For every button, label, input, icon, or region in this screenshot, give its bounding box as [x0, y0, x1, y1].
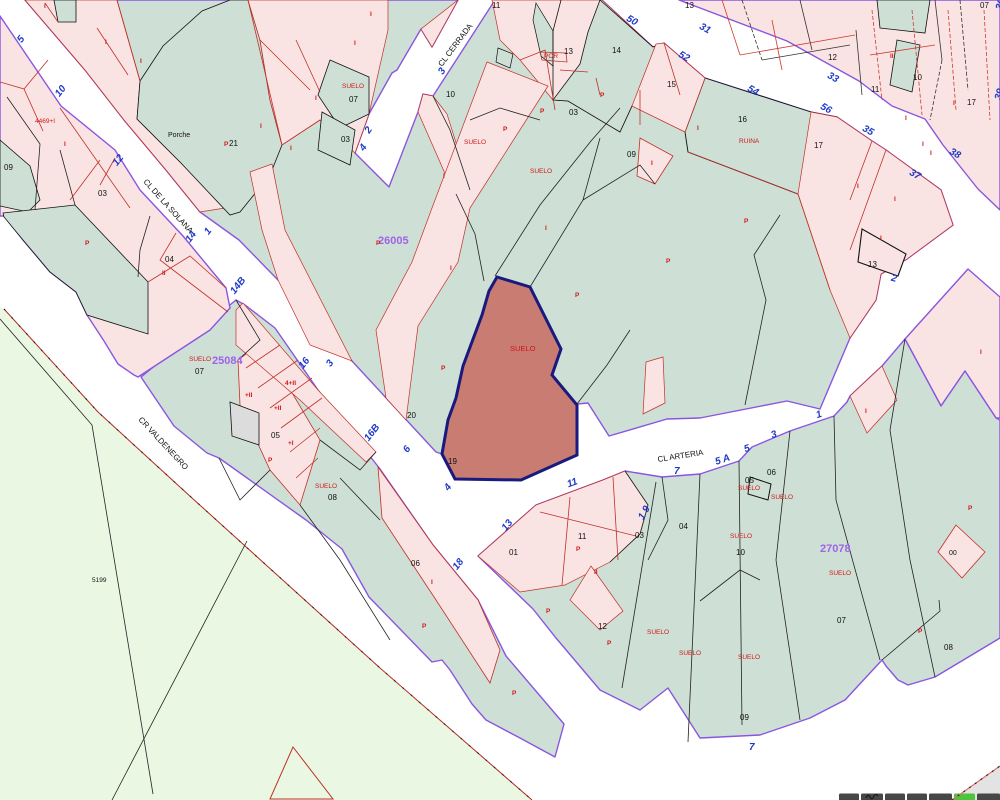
svg-text:09: 09: [627, 150, 636, 159]
svg-text:10: 10: [913, 73, 922, 82]
svg-text:I: I: [370, 11, 372, 18]
svg-text:07: 07: [837, 616, 846, 625]
svg-text:08: 08: [944, 643, 953, 652]
svg-text:SUELO: SUELO: [730, 533, 752, 540]
svg-text:17: 17: [967, 98, 976, 107]
svg-text:7: 7: [749, 742, 755, 753]
svg-text:II: II: [594, 569, 598, 576]
svg-text:01: 01: [509, 548, 518, 557]
svg-text:20: 20: [407, 411, 416, 420]
svg-text:I: I: [64, 141, 66, 148]
svg-text:P: P: [540, 108, 545, 115]
svg-text:I: I: [140, 58, 142, 65]
svg-text:II: II: [162, 270, 166, 277]
svg-text:P: P: [575, 292, 580, 299]
svg-text:11: 11: [492, 1, 501, 10]
svg-text:II: II: [890, 53, 894, 60]
svg-text:RUINA: RUINA: [739, 138, 760, 145]
svg-text:P: P: [607, 640, 612, 647]
svg-text:P: P: [512, 690, 517, 697]
svg-text:I: I: [260, 123, 262, 130]
svg-text:08: 08: [328, 493, 337, 502]
svg-text:P: P: [600, 92, 605, 99]
svg-text:05: 05: [745, 476, 754, 485]
svg-text:25084: 25084: [212, 355, 243, 367]
svg-text:SUELO: SUELO: [679, 650, 701, 657]
svg-text:I: I: [905, 115, 907, 122]
svg-text:26005: 26005: [378, 235, 409, 247]
svg-text:07: 07: [195, 367, 204, 376]
svg-text:4469+I: 4469+I: [35, 118, 55, 125]
svg-text:POR: POR: [544, 53, 558, 60]
svg-text:SUELO: SUELO: [647, 629, 669, 636]
svg-text:16: 16: [738, 115, 747, 124]
svg-text:03: 03: [341, 135, 350, 144]
svg-text:+II: +II: [274, 405, 282, 412]
svg-text:SUELO: SUELO: [738, 654, 760, 661]
svg-text:05: 05: [271, 431, 280, 440]
svg-text:04: 04: [165, 255, 174, 264]
svg-text:SUELO: SUELO: [771, 494, 793, 501]
svg-text:Porche: Porche: [168, 132, 190, 139]
svg-text:+II: +II: [245, 392, 253, 399]
svg-text:SUELO: SUELO: [829, 570, 851, 577]
svg-text:04: 04: [679, 522, 688, 531]
svg-text:I: I: [443, 173, 445, 180]
svg-text:SUELO: SUELO: [189, 356, 211, 363]
svg-text:I: I: [315, 95, 317, 102]
svg-text:P: P: [503, 126, 508, 133]
svg-text:P: P: [224, 141, 229, 148]
svg-text:P: P: [744, 218, 749, 225]
svg-text:06: 06: [767, 468, 776, 477]
svg-text:I: I: [930, 150, 932, 157]
svg-text:SUELO: SUELO: [342, 83, 364, 90]
svg-text:SUELO: SUELO: [530, 168, 552, 175]
svg-text:21: 21: [229, 139, 238, 148]
svg-text:I: I: [880, 235, 882, 242]
svg-text:I: I: [651, 160, 653, 167]
svg-text:I: I: [290, 145, 292, 152]
svg-text:P: P: [576, 546, 581, 553]
svg-text:17: 17: [814, 141, 823, 150]
svg-text:I: I: [857, 183, 859, 190]
svg-text:19: 19: [448, 457, 457, 466]
svg-text:12: 12: [828, 53, 837, 62]
svg-text:5199: 5199: [92, 577, 107, 584]
svg-text:I: I: [431, 579, 433, 586]
svg-text:+I: +I: [288, 440, 294, 447]
svg-text:P: P: [376, 240, 381, 247]
svg-text:I: I: [450, 265, 452, 272]
svg-text:09: 09: [740, 713, 749, 722]
svg-text:P: P: [85, 240, 90, 247]
svg-text:13: 13: [868, 260, 877, 269]
svg-text:07: 07: [980, 1, 989, 10]
svg-text:14: 14: [612, 46, 621, 55]
svg-text:I: I: [953, 100, 955, 107]
svg-text:27078: 27078: [820, 543, 851, 555]
svg-text:30: 30: [994, 0, 1000, 11]
svg-text:10: 10: [736, 548, 745, 557]
svg-text:15: 15: [667, 80, 676, 89]
svg-text:I: I: [894, 196, 896, 203]
svg-text:11: 11: [578, 532, 587, 541]
svg-text:13: 13: [564, 47, 573, 56]
svg-text:I: I: [105, 39, 107, 46]
svg-text:I: I: [697, 125, 699, 132]
svg-text:I: I: [354, 40, 356, 47]
svg-text:SUELO: SUELO: [464, 139, 486, 146]
svg-text:4+II: 4+II: [285, 380, 296, 387]
svg-text:11: 11: [871, 85, 880, 94]
svg-text:SUELO: SUELO: [738, 485, 760, 492]
svg-text:7: 7: [674, 466, 680, 477]
svg-text:I: I: [545, 225, 547, 232]
svg-text:10: 10: [446, 90, 455, 99]
svg-text:P: P: [968, 505, 973, 512]
svg-text:P: P: [441, 365, 446, 372]
svg-text:I: I: [865, 408, 867, 415]
svg-text:07: 07: [349, 95, 358, 104]
svg-text:06: 06: [411, 559, 420, 568]
svg-text:09: 09: [4, 163, 13, 172]
svg-text:P: P: [268, 457, 273, 464]
svg-text:13: 13: [685, 1, 694, 10]
svg-text:P: P: [666, 258, 671, 265]
svg-text:P: P: [918, 628, 923, 635]
svg-text:03: 03: [635, 531, 644, 540]
svg-text:03: 03: [569, 108, 578, 117]
svg-text:00: 00: [949, 550, 957, 557]
svg-text:P: P: [422, 623, 427, 630]
svg-text:SUELO: SUELO: [510, 344, 536, 353]
svg-text:12: 12: [598, 622, 607, 631]
svg-text:I: I: [980, 349, 982, 356]
svg-text:I: I: [44, 3, 46, 10]
svg-text:P: P: [546, 608, 551, 615]
svg-text:03: 03: [98, 189, 107, 198]
svg-text:I: I: [922, 141, 924, 148]
svg-text:SUELO: SUELO: [315, 483, 337, 490]
